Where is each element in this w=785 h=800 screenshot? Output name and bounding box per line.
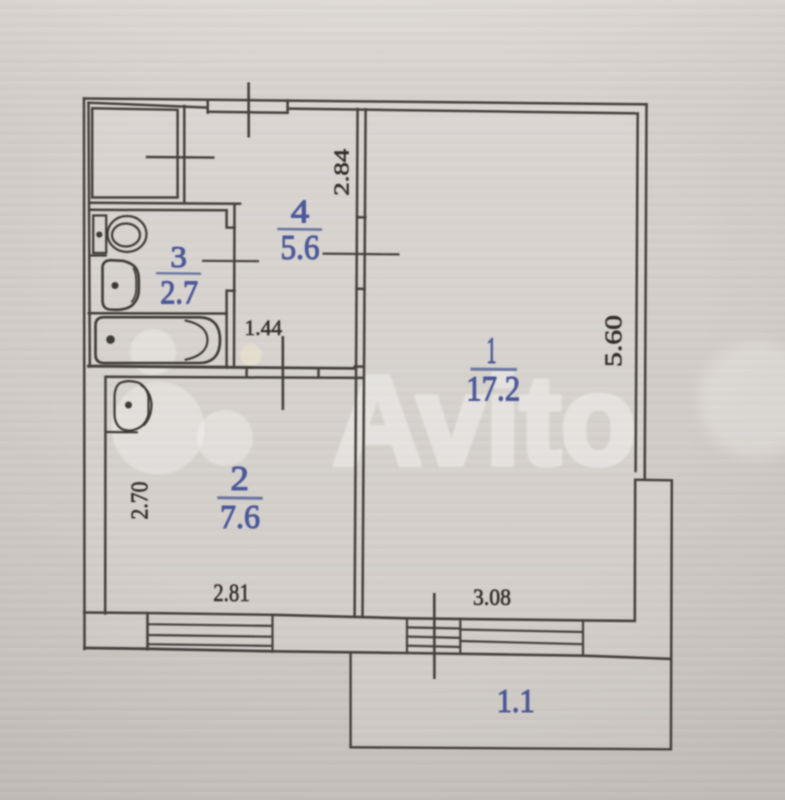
svg-text:2.70: 2.70: [128, 482, 154, 520]
svg-text:1: 1: [487, 330, 497, 372]
svg-text:5.60: 5.60: [602, 315, 628, 367]
svg-text:2.81: 2.81: [213, 580, 250, 607]
svg-text:3: 3: [170, 239, 187, 274]
svg-text:2.7: 2.7: [160, 275, 198, 312]
svg-text:1.44: 1.44: [245, 315, 283, 340]
svg-text:3.08: 3.08: [473, 585, 511, 610]
svg-text:2: 2: [230, 459, 249, 498]
svg-text:1.1: 1.1: [497, 683, 535, 720]
svg-text:4: 4: [291, 194, 310, 231]
svg-text:2.84: 2.84: [329, 148, 353, 196]
svg-text:5.6: 5.6: [281, 228, 320, 267]
svg-text:7.6: 7.6: [220, 499, 260, 536]
svg-text:17.2: 17.2: [466, 369, 520, 409]
